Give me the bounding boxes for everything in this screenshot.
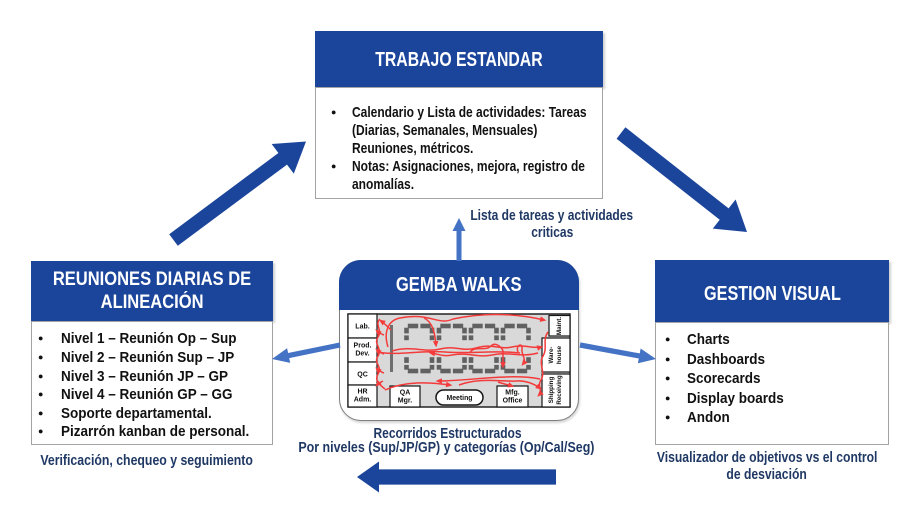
svg-text:QA: QA [400,390,411,397]
svg-text:HR: HR [357,389,367,396]
svg-text:Receiving: Receiving [556,375,563,404]
svg-text:Adm.: Adm. [354,397,372,404]
svg-text:Lab.: Lab. [355,324,369,331]
svg-text:Mfg.: Mfg. [505,390,519,397]
svg-text:Office: Office [503,398,523,405]
svg-text:Ware-: Ware- [548,347,555,364]
svg-text:Dev.: Dev. [355,351,369,358]
svg-text:QC: QC [357,372,368,379]
svg-text:house: house [556,345,563,364]
svg-text:Shipping: Shipping [548,377,555,404]
svg-text:Prod.: Prod. [354,343,372,350]
svg-text:Meeting: Meeting [446,395,472,402]
svg-text:Maint.: Maint. [556,317,563,335]
svg-text:Mgr.: Mgr. [398,398,412,405]
